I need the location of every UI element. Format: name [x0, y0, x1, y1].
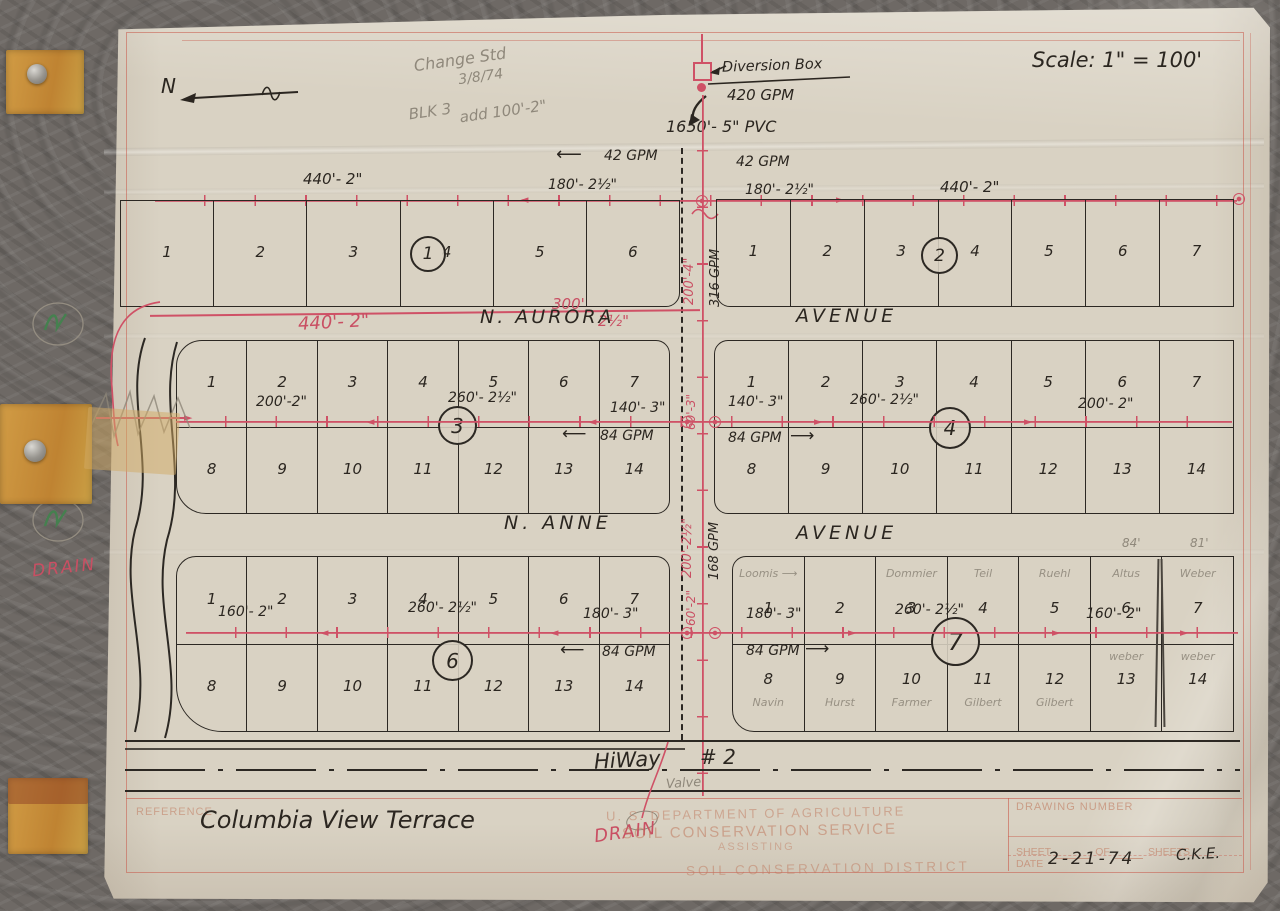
lot-number: 2 — [835, 599, 845, 617]
flow-arrow-left: ⟵ — [562, 424, 586, 444]
lot-number: 5 — [1044, 242, 1054, 260]
lot-4-10: 10 — [862, 428, 936, 514]
lot-4-7: 7 — [1159, 341, 1233, 427]
pipe-junction — [681, 627, 693, 639]
lot-2-5: 5 — [1011, 200, 1085, 306]
flow-b3: 84 GPM — [600, 428, 654, 444]
mainline-seg4-dim: 60'-2" — [684, 590, 698, 626]
lot-number: 5 — [1050, 599, 1060, 617]
lot-number: 13 — [554, 460, 573, 478]
pipe-junction — [709, 627, 721, 639]
lot-number: 11 — [964, 460, 983, 478]
dim-b4-seg3: 200'- 2" — [1078, 396, 1133, 412]
lot-number: 7 — [629, 373, 639, 391]
dim-b4-seg1: 140'- 3" — [728, 394, 783, 410]
flow-b7: 84 GPM — [746, 643, 800, 659]
dim-b7-seg1: 180'- 3" — [746, 606, 801, 622]
flow-arrow-right: ⟶ — [805, 639, 829, 659]
lot-4-3: 3 — [862, 341, 936, 427]
block34-lateral-pipe — [176, 416, 1232, 427]
lot-number: 10 — [343, 460, 362, 478]
dim-b2-main: 440'- 2" — [940, 178, 999, 196]
lot-number: 4 — [969, 373, 979, 391]
flow-arrow-icon: ◄ — [550, 626, 558, 639]
lot-4-12: 12 — [1011, 428, 1085, 514]
drafter-initials: C.K.E. — [1176, 844, 1221, 864]
lot-6-9: 9 — [246, 645, 316, 732]
lot-number: 7 — [1193, 599, 1203, 617]
flow-arrow-icon: ► — [1052, 626, 1060, 639]
lot-number: 2 — [255, 243, 265, 261]
block-number-2: 2 — [921, 237, 958, 274]
lot-number: 1 — [162, 243, 172, 261]
lot-number: 3 — [348, 590, 358, 608]
lot-3-10: 10 — [317, 428, 387, 514]
flow-arrow-right: ⟶ — [790, 426, 814, 446]
lot-number: 2 — [823, 242, 833, 260]
lot-3-6: 6 — [528, 341, 598, 427]
change-note-line3: BLK 3 — [408, 100, 453, 124]
thumbtack — [24, 440, 46, 462]
flow-arrow-icon: ◄ — [366, 415, 374, 428]
dim-aurora-main: 440'- 2" — [297, 310, 369, 335]
lot-number: 2 — [277, 590, 287, 608]
thumbtack — [27, 64, 47, 84]
street-anne: N. ANNE — [504, 512, 612, 534]
dim-b1-lateral: 180'- 2½" — [548, 177, 617, 193]
lot-owner-name: Gilbert — [1036, 696, 1073, 709]
plat-map-photo: N Scale: 1" = 100' Change Std 3/8/74 BLK… — [0, 0, 1280, 911]
block-2: 1234567 — [716, 199, 1234, 307]
dim-b7-seg2: 260'- 2½" — [895, 602, 964, 618]
drawing-number-label: DRAWING NUMBER — [1016, 801, 1133, 813]
scale-note: Scale: 1" = 100' — [1032, 48, 1202, 72]
change-note-line4: add 100'-2" — [458, 96, 547, 126]
dim-b3-seg3: 140'- 3" — [610, 400, 665, 416]
lot-3-2: 2 — [246, 341, 316, 427]
dim-b6-seg1: 160'- 2" — [218, 604, 273, 620]
mainline-seg3-dim: 200'-2½" — [680, 518, 695, 578]
flow-b4: 84 GPM — [728, 430, 782, 446]
lot-number: 5 — [489, 373, 499, 391]
lot-number: 3 — [349, 243, 359, 261]
highway-number: # 2 — [700, 745, 736, 769]
lot-3-9: 9 — [246, 428, 316, 514]
lot-number: 13 — [1113, 460, 1132, 478]
sheet-border-inner-top — [182, 40, 1240, 41]
lot-number: 5 — [1043, 373, 1053, 391]
lot-owner-name: Navin — [753, 696, 785, 709]
lot-number: 3 — [895, 373, 905, 391]
lot-number: 5 — [535, 243, 545, 261]
lot-owner-name: Dommier — [886, 567, 937, 580]
lot-2-1: 1 — [717, 200, 790, 306]
lot-number: 7 — [1192, 242, 1202, 260]
lot-number: 12 — [484, 460, 503, 478]
title-block-divider-v — [1008, 798, 1009, 871]
lot-4-14: 14 — [1159, 428, 1233, 514]
main-pvc-label: 1650'- 5" PVC — [666, 117, 776, 136]
lot-owner-name: Altus — [1112, 567, 1140, 580]
masking-tape-middle-flap — [84, 407, 180, 475]
lot-number: 10 — [890, 460, 909, 478]
lot-number: 2 — [277, 373, 287, 391]
lot-number: 11 — [413, 460, 432, 478]
flow-arrow-icon: ► — [814, 415, 822, 428]
lot-1-3: 3 — [306, 201, 399, 306]
flow-42-left: 42 GPM — [604, 148, 658, 164]
lot-number: 10 — [902, 670, 921, 688]
flow-arrow-left: ⟵ — [560, 640, 584, 660]
lot-owner-name: weber — [1181, 650, 1215, 663]
lot-4-1: 1 — [715, 341, 788, 427]
lot-owner-name: Hurst — [825, 696, 855, 709]
lot-number: 10 — [343, 677, 362, 695]
dim-b1-main: 440'- 2" — [303, 170, 362, 188]
pipe-junction — [696, 195, 708, 207]
lot-2-6: 6 — [1085, 200, 1159, 306]
mainline-seg3-flow: 168 GPM — [707, 522, 722, 580]
dim-b6-seg2: 260'- 2½" — [408, 600, 477, 616]
dim-b3-seg2: 260'- 2½" — [448, 390, 517, 406]
lot-owner-name: Gilbert — [964, 696, 1001, 709]
lot-number: 9 — [277, 677, 287, 695]
lot-number: 9 — [277, 460, 287, 478]
mainline-seg1-flow: 316 GPM — [708, 249, 723, 307]
lot-number: 14 — [1188, 670, 1207, 688]
tape-residue — [8, 778, 88, 804]
lot-number: 9 — [821, 460, 831, 478]
lot-number: 1 — [747, 373, 757, 391]
lot-owner-name: Weber — [1180, 567, 1216, 580]
flow-arrow-icon: ◄ — [320, 626, 328, 639]
lot-number: 14 — [1187, 460, 1206, 478]
lot-4-6: 6 — [1085, 341, 1159, 427]
mainline-seg1-dim: 200'-4" — [682, 258, 697, 305]
lot6-width-note: 84' — [1122, 536, 1141, 550]
pipe-junction — [681, 416, 693, 428]
north-arrow-icon — [150, 70, 310, 115]
road-centerline-dashed — [681, 148, 683, 740]
dim-b2-lateral: 180'- 2½" — [745, 182, 814, 198]
lot-7-13: 13weber — [1090, 645, 1162, 732]
date-label: DATE — [1016, 858, 1043, 870]
lot-1-2: 2 — [213, 201, 306, 306]
lot-number: 6 — [559, 590, 569, 608]
block-number-7: 7 — [931, 617, 980, 666]
flow-arrow-icon: ► — [1180, 626, 1188, 639]
lot-owner-name: Loomis ⟶ — [739, 567, 797, 580]
flow-42-right: 42 GPM — [736, 154, 790, 170]
lot-number: 13 — [1117, 670, 1136, 688]
lot-1-5: 5 — [493, 201, 586, 306]
flow-arrow-left: ⟵ — [556, 144, 582, 165]
lot-7-12: 12Gilbert — [1018, 645, 1090, 732]
lot-number: 14 — [625, 677, 644, 695]
lot7-width-note: 81' — [1190, 536, 1209, 550]
lot-number: 8 — [747, 460, 757, 478]
block-number-1: 1 — [410, 236, 446, 272]
lot-number: 14 — [625, 460, 644, 478]
lot-number: 4 — [970, 242, 980, 260]
dim-b7-seg3: 160'- 2" — [1086, 606, 1141, 622]
lot-2-2: 2 — [790, 200, 864, 306]
dim-b3-seg1: 200'-2" — [256, 394, 307, 410]
subdivision-title: Columbia View Terrace — [200, 806, 475, 834]
dim-b4-seg2: 260'- 2½" — [850, 392, 919, 408]
lot-1-6: 6 — [586, 201, 679, 306]
masking-tape-middle — [0, 404, 92, 504]
lot-7-14: 14weber — [1161, 645, 1233, 732]
lot-owner-name: Ruehl — [1039, 567, 1070, 580]
change-note-line2: 3/8/74 — [457, 66, 504, 88]
lot-number: 6 — [1117, 373, 1127, 391]
lot-owner-name: Farmer — [892, 696, 932, 709]
block-number-4: 4 — [929, 407, 971, 449]
lot-number: 3 — [348, 373, 358, 391]
block-6: 1234567891011121314 — [176, 556, 670, 732]
flow-arrow-icon: ► — [1024, 415, 1032, 428]
lot-number: 4 — [978, 599, 988, 617]
lot-6-10: 10 — [317, 645, 387, 732]
lot-number: 8 — [764, 670, 774, 688]
flow-arrow-icon: ► — [848, 626, 856, 639]
diversion-flow-label: 420 GPM — [727, 86, 794, 104]
pipe-end-cap — [1233, 193, 1245, 205]
green-check-mark — [30, 300, 88, 348]
lot-number: 6 — [628, 243, 638, 261]
sheet-border-right2 — [1250, 33, 1251, 870]
lot-number: 9 — [835, 670, 845, 688]
block-number-6: 6 — [432, 640, 473, 681]
lot-number: 12 — [484, 677, 503, 695]
lot-number: 6 — [559, 373, 569, 391]
lot-number: 7 — [1192, 373, 1202, 391]
lot-number: 12 — [1045, 670, 1064, 688]
pipe-junction — [709, 416, 721, 428]
lot-number: 5 — [489, 590, 499, 608]
highway-edge-top — [125, 740, 1240, 742]
lot-number: 4 — [418, 373, 428, 391]
lot-number: 11 — [413, 677, 432, 695]
lot-3-3: 3 — [317, 341, 387, 427]
street-aurora-avenue: AVENUE — [796, 305, 897, 327]
lot-4-2: 2 — [788, 341, 862, 427]
sheet-label: SHEET — [1016, 846, 1051, 858]
street-anne-avenue: AVENUE — [796, 522, 897, 544]
lot-owner-name: weber — [1109, 650, 1143, 663]
lot-number: 6 — [1118, 242, 1128, 260]
flow-arrow-icon: ◄ — [588, 415, 596, 428]
lot-number: 12 — [1039, 460, 1058, 478]
lot-number: 3 — [896, 242, 906, 260]
street-aurora: N. AURORA — [480, 306, 615, 328]
masking-tape-top — [6, 50, 84, 114]
lot-number: 1 — [749, 242, 759, 260]
dim-b6-seg3: 180'- 3" — [583, 606, 638, 622]
lot-2-7: 7 — [1159, 200, 1233, 306]
title-block-divider-h1 — [1008, 836, 1242, 837]
lot-4-13: 13 — [1085, 428, 1159, 514]
drain-left-label: DRAIN — [31, 555, 97, 582]
lot-number: 13 — [554, 677, 573, 695]
highway-centerline — [125, 769, 1240, 771]
stamp-assisting: ASSISTING — [718, 841, 795, 853]
title-block-divider-top — [126, 798, 1242, 799]
lot-number: 2 — [821, 373, 831, 391]
flow-b6: 84 GPM — [602, 644, 656, 660]
lot-4-5: 5 — [1011, 341, 1085, 427]
date-value: 2-21-74 — [1048, 849, 1135, 869]
lot-number: 11 — [973, 670, 992, 688]
lot-owner-name: Teil — [974, 567, 992, 580]
